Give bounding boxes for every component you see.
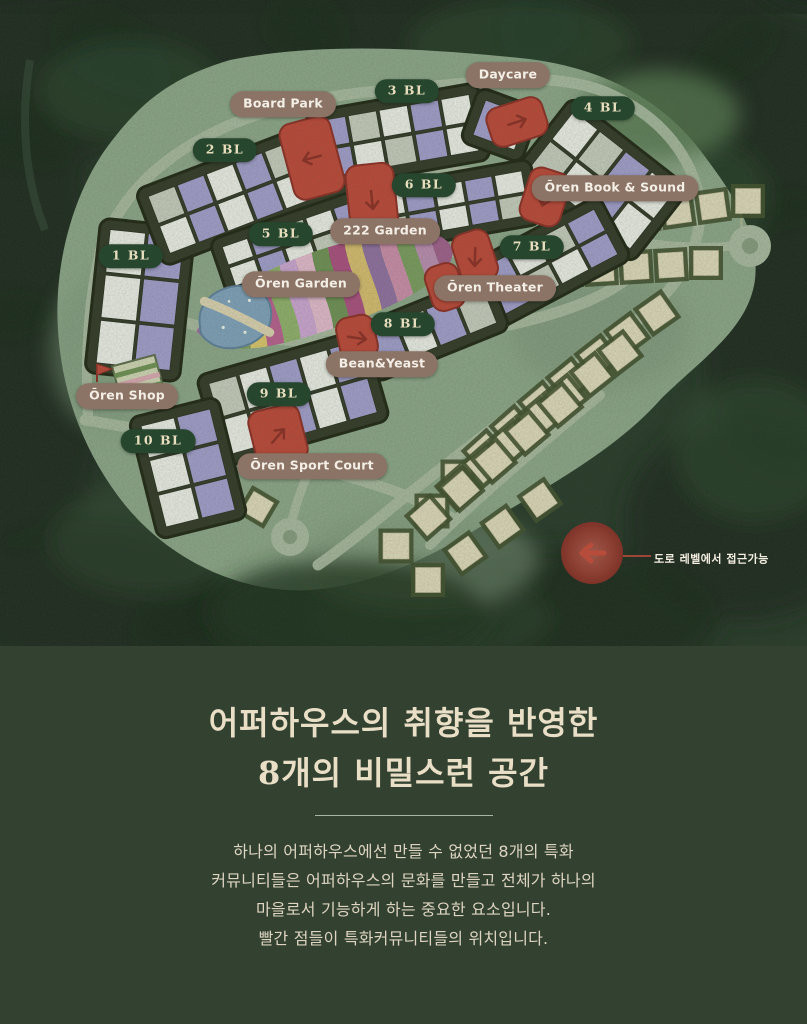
- block-label-4-bl: 4 BL: [571, 96, 635, 120]
- amenity-label-daycare: Daycare: [466, 62, 550, 88]
- headline-line-1: 어퍼하우스의 취향을 반영한: [209, 704, 599, 742]
- block-label-8-bl: 8 BL: [371, 312, 435, 336]
- description-line: 마을로서 기능하게 하는 중요한 요소입니다.: [256, 900, 551, 919]
- amenity-label-bean-yeast: Bean&Yeast: [326, 351, 438, 377]
- amenity-label-oren-sport-court: Ōren Sport Court: [237, 453, 387, 479]
- description-line: 빨간 점들이 특화커뮤니티들의 위치입니다.: [259, 929, 549, 948]
- block-label-2-bl: 2 BL: [193, 138, 257, 162]
- amenity-label-oren-theater: Ōren Theater: [434, 275, 556, 301]
- amenity-label-oren-book-sound: Ōren Book & Sound: [532, 175, 699, 201]
- block-label-6-bl: 6 BL: [392, 173, 456, 197]
- site-plan-map: 1 BL2 BL3 BL4 BL5 BL6 BL7 BL8 BL9 BL10 B…: [0, 0, 807, 646]
- block-label-5-bl: 5 BL: [249, 222, 313, 246]
- amenity-label-oren-shop: Ōren Shop: [76, 383, 178, 409]
- amenity-label-oren-garden: Ōren Garden: [242, 271, 360, 297]
- block-label-9-bl: 9 BL: [247, 382, 311, 406]
- divider-line: [315, 815, 493, 816]
- map-legend: 도로 레벨에서 접근가능: [654, 548, 769, 567]
- block-label-7-bl: 7 BL: [500, 235, 564, 259]
- amenity-label-board-park: Board Park: [230, 91, 336, 117]
- block-label-10-bl: 10 BL: [121, 429, 196, 453]
- page-title: 어퍼하우스의 취향을 반영한 8개의 비밀스런 공간: [0, 698, 807, 798]
- description-line: 커뮤니티들은 어퍼하우스의 문화를 만들고 전체가 하나의: [211, 871, 596, 890]
- headline-line-2: 8개의 비밀스런 공간: [258, 754, 549, 792]
- amenity-label-222-garden: 222 Garden: [330, 218, 440, 244]
- description-line: 하나의 어퍼하우스에선 만들 수 없었던 8개의 특화: [233, 842, 574, 861]
- description-paragraph: 하나의 어퍼하우스에선 만들 수 없었던 8개의 특화 커뮤니티들은 어퍼하우스…: [0, 837, 807, 953]
- block-label-1-bl: 1 BL: [99, 244, 163, 268]
- brochure-page: 1 BL2 BL3 BL4 BL5 BL6 BL7 BL8 BL9 BL10 B…: [0, 0, 807, 1024]
- description-section: 어퍼하우스의 취향을 반영한 8개의 비밀스런 공간 하나의 어퍼하우스에선 만…: [0, 646, 807, 1024]
- legend-label: 도로 레벨에서 접근가능: [654, 553, 769, 566]
- block-label-3-bl: 3 BL: [375, 79, 439, 103]
